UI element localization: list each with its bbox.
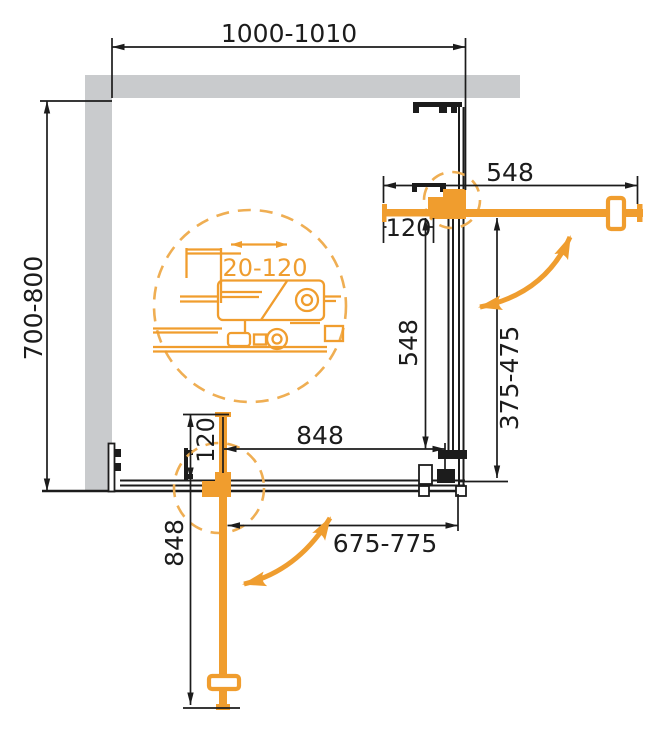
door-right-handle	[608, 198, 624, 229]
wall-left	[85, 75, 112, 492]
right-hinge-plate-tab	[412, 187, 417, 192]
door-right-cap-right	[637, 204, 643, 222]
technical-drawing-page: 20-120 1000-1010	[0, 0, 661, 732]
dim-depth-left: 700-800	[19, 256, 48, 360]
dim-adjustment: 20-120	[222, 254, 307, 282]
door-bottom-cap-bottom	[216, 704, 230, 710]
dim-width-top: 1000-1010	[221, 19, 357, 48]
dim-offset-right: 120	[386, 214, 432, 242]
corner-bracket-bar	[438, 450, 467, 459]
lower-rail-upper	[153, 329, 222, 333]
clamp-block	[228, 333, 250, 346]
detail-circle: 20-120	[153, 210, 346, 402]
corner-bracket-block	[437, 469, 455, 483]
dim-side-right: 548	[394, 319, 423, 367]
shower-enclosure-plan-drawing: 20-120 1000-1010	[0, 0, 661, 732]
corner-foot	[419, 486, 429, 496]
left-wall-profile-tab	[114, 449, 121, 457]
top-wall-profile-tab	[413, 107, 419, 113]
dim-span-bottom: 848	[296, 421, 344, 450]
wall-profiles	[109, 102, 468, 496]
dim-door-right: 548	[486, 158, 534, 187]
top-wall-profile	[413, 102, 462, 107]
top-wall-profile-tab	[439, 107, 447, 113]
corner-bracket-tab	[419, 465, 432, 484]
door-bottom-handle	[209, 676, 239, 689]
lower-rail	[153, 347, 327, 352]
bottom-hinge-plate	[184, 448, 188, 480]
top-wall-profile-tab	[451, 107, 457, 113]
roller-axle	[302, 295, 312, 305]
lower-axle	[273, 335, 282, 344]
swing-arrow-bottom-door-icon	[244, 518, 330, 584]
dim-entry-right: 375-475	[495, 326, 524, 430]
roller-wheel	[296, 289, 318, 311]
roller-body	[218, 281, 324, 321]
clamp-pad	[254, 335, 266, 345]
dim-offset-bottom: 120	[192, 417, 220, 463]
dim-door-bottom: 848	[160, 519, 189, 567]
body-detail-lines	[222, 292, 262, 297]
roller-body-edge	[261, 281, 287, 320]
wall-top	[85, 75, 520, 98]
left-wall-profile-tab	[114, 463, 121, 471]
left-wall-profile	[109, 444, 115, 492]
swing-arrow-right-door-icon	[480, 237, 570, 307]
dim-entry-bottom: 675-775	[333, 529, 437, 558]
